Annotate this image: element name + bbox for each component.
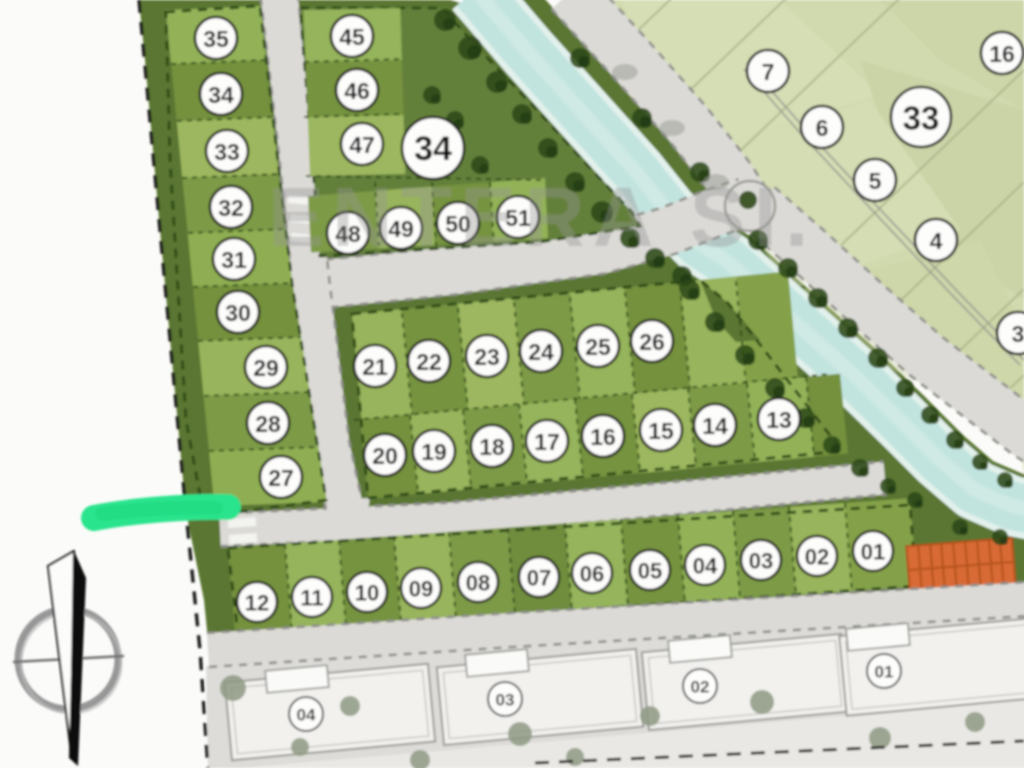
svg-text:47: 47 [349, 132, 375, 158]
svg-text:03: 03 [496, 691, 515, 710]
svg-text:34: 34 [414, 130, 452, 168]
svg-text:ENTERA SI.: ENTERA SI. [268, 170, 816, 264]
svg-text:16: 16 [590, 424, 616, 450]
svg-text:08: 08 [466, 571, 490, 596]
svg-text:28: 28 [255, 411, 281, 437]
svg-text:5: 5 [869, 168, 882, 194]
svg-text:21: 21 [362, 354, 388, 380]
svg-text:11: 11 [300, 586, 323, 611]
svg-text:34: 34 [208, 82, 234, 108]
svg-text:29: 29 [253, 355, 279, 381]
svg-text:17: 17 [534, 429, 560, 455]
svg-text:09: 09 [409, 577, 433, 602]
svg-text:13: 13 [766, 407, 792, 433]
svg-text:20: 20 [372, 443, 398, 469]
svg-text:04: 04 [693, 554, 718, 579]
svg-text:03: 03 [749, 549, 773, 574]
svg-text:31: 31 [221, 247, 247, 273]
svg-text:16: 16 [989, 41, 1015, 67]
svg-text:02: 02 [805, 545, 829, 570]
svg-text:27: 27 [268, 465, 294, 491]
svg-text:19: 19 [421, 439, 447, 465]
svg-text:06: 06 [580, 562, 604, 587]
svg-text:30: 30 [225, 300, 251, 326]
svg-text:10: 10 [355, 581, 379, 606]
svg-text:12: 12 [245, 591, 269, 616]
svg-text:22: 22 [416, 349, 442, 375]
svg-text:6: 6 [816, 115, 829, 141]
svg-text:18: 18 [479, 434, 505, 460]
svg-text:26: 26 [639, 329, 665, 355]
svg-text:45: 45 [339, 24, 365, 50]
svg-text:04: 04 [297, 706, 316, 725]
svg-text:35: 35 [203, 26, 229, 52]
svg-text:33: 33 [214, 139, 240, 165]
svg-text:32: 32 [218, 195, 244, 221]
svg-text:01: 01 [861, 540, 885, 565]
svg-text:15: 15 [648, 418, 674, 444]
svg-text:46: 46 [344, 78, 370, 104]
svg-text:7: 7 [762, 59, 775, 85]
svg-text:33: 33 [903, 100, 940, 137]
svg-text:23: 23 [474, 344, 500, 370]
svg-text:3: 3 [1012, 321, 1024, 347]
svg-text:24: 24 [528, 339, 554, 365]
svg-text:07: 07 [527, 566, 551, 591]
svg-text:14: 14 [702, 413, 728, 439]
svg-text:05: 05 [638, 559, 662, 584]
svg-text:02: 02 [691, 678, 710, 697]
svg-text:4: 4 [930, 228, 943, 254]
svg-text:01: 01 [875, 663, 894, 682]
svg-text:25: 25 [585, 334, 611, 360]
